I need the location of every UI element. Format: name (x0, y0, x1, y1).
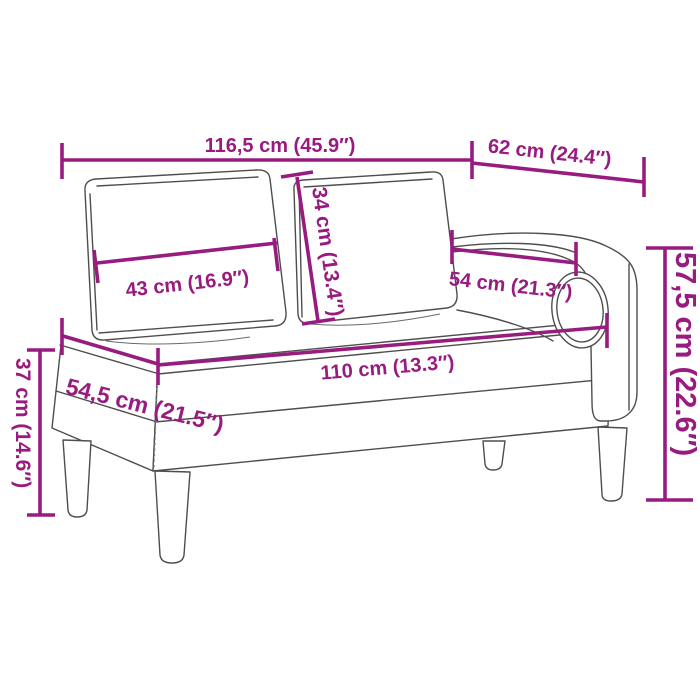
left-back-cushion (85, 170, 286, 340)
dimension-diagram: 116,5 cm (45.9″) 62 cm (24.4″) 34 cm (13… (0, 0, 700, 700)
armrest-length-label: 54 cm (21.3″) (448, 268, 574, 304)
dim-seat-height: 37 cm (14.6″) (11, 350, 55, 515)
rear-right-leg (483, 441, 505, 470)
rear-left-leg (63, 440, 91, 517)
total-length-label: 116,5 cm (45.9″) (205, 135, 356, 157)
dim-total-height: 57,5 cm (22.6″) (646, 248, 700, 500)
front-right-leg (598, 427, 627, 501)
dim-right-section-depth: 62 cm (24.4″) (472, 135, 644, 197)
total-height-label: 57,5 cm (22.6″) (669, 252, 700, 456)
seat-height-label: 37 cm (14.6″) (11, 358, 34, 488)
base-front-face (153, 320, 612, 471)
front-left-leg (155, 471, 190, 563)
chaise-longue-diagram-svg: 116,5 cm (45.9″) 62 cm (24.4″) 34 cm (13… (0, 0, 700, 700)
